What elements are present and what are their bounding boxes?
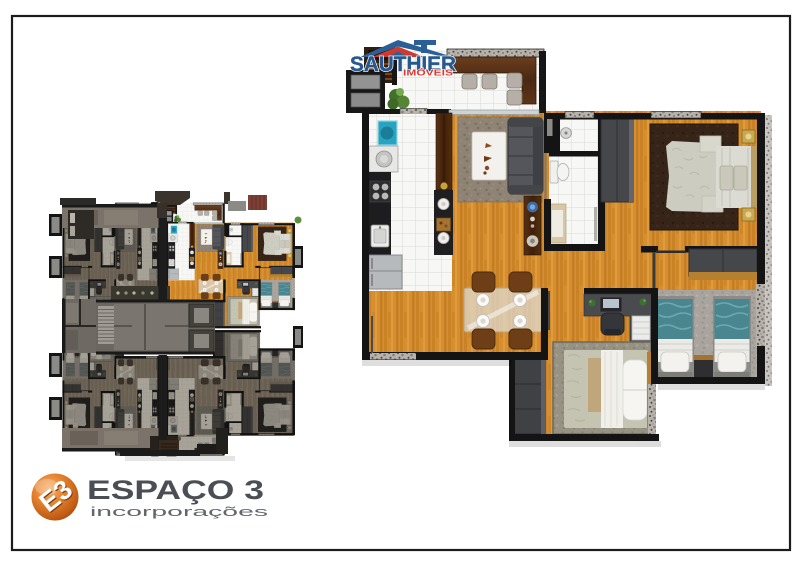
svg-text:ESPAÇO 3: ESPAÇO 3 [87, 475, 264, 505]
svg-text:incorporações: incorporações [90, 505, 268, 519]
svg-text:IMÓVEIS: IMÓVEIS [403, 67, 453, 78]
